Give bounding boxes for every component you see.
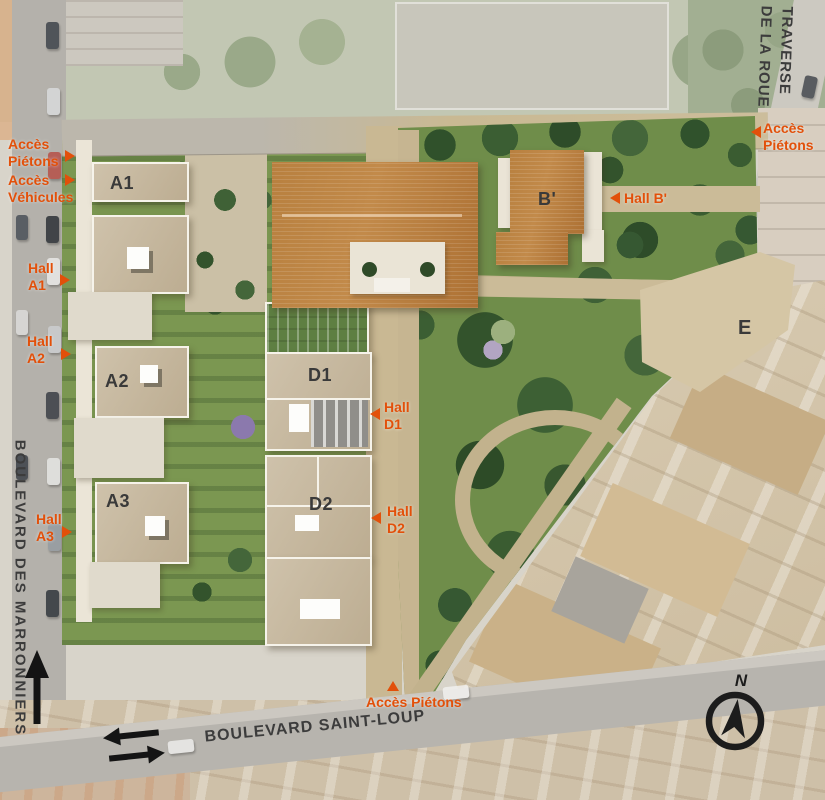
- arrow-right-icon: [60, 274, 70, 286]
- parked-car: [46, 590, 59, 617]
- central-courtyard: [185, 140, 267, 312]
- label-line: Hall: [27, 333, 53, 350]
- building-a1-north-wing: [92, 162, 189, 202]
- building-b-south-wing-roof: [496, 232, 568, 265]
- arrow-left-icon: [371, 512, 381, 524]
- label-line: Piétons: [763, 137, 814, 154]
- label-line: Hall: [36, 511, 62, 528]
- label-line: A2: [27, 350, 53, 367]
- building-d1-gray-roof: [311, 400, 368, 447]
- arrow-left-icon: [610, 192, 620, 204]
- hall-a1-label: Hall A1: [28, 260, 54, 294]
- rooflight: [145, 516, 165, 536]
- residence-site-plan: N BOULEVARD DES MARRONNIERS BOULEVARD SA…: [0, 0, 825, 800]
- building-label-e: E: [738, 317, 752, 340]
- rooflight: [140, 365, 158, 383]
- existing-building-entrance: [350, 242, 445, 294]
- access-pedestrian-ne-label: Accès Piétons: [763, 120, 814, 154]
- building-b-east-band: [582, 152, 602, 232]
- building-label-a3: A3: [106, 491, 130, 512]
- arrow-up-icon: [387, 681, 399, 691]
- parked-car: [47, 458, 60, 485]
- parked-car: [46, 392, 59, 419]
- road-label-boulevard-des-marronniers: BOULEVARD DES MARRONNIERS: [12, 440, 29, 736]
- label-line: A3: [36, 528, 62, 545]
- entrance-canopy: [374, 278, 410, 292]
- building-label-b: B': [538, 189, 556, 210]
- building-label-a2: A2: [105, 371, 129, 392]
- bush: [362, 262, 377, 277]
- label-line: Accès: [763, 120, 814, 137]
- hall-b-label: Hall B': [624, 190, 667, 207]
- building-d-green-roof: [265, 302, 369, 356]
- label-line: Véhicules: [8, 189, 73, 206]
- building-a-link-block: [74, 418, 164, 478]
- rooflight: [295, 515, 319, 531]
- label-line: Accès: [8, 136, 59, 153]
- parked-car: [47, 88, 60, 115]
- building-a-link-block: [90, 562, 160, 608]
- roof-ridge: [282, 214, 462, 217]
- hall-d2-label: Hall D2: [387, 503, 413, 537]
- access-vehicle-w-label: Accès Véhicules: [8, 172, 73, 206]
- arrow-left-icon: [370, 408, 380, 420]
- rooflight: [300, 599, 340, 619]
- label-line: Accès: [8, 172, 73, 189]
- arrow-left-icon: [751, 126, 761, 138]
- aerial-backdrop-nw-buildings: [58, 0, 183, 66]
- hall-a3-label: Hall A3: [36, 511, 62, 545]
- arrow-right-icon: [61, 348, 71, 360]
- label-line: Piétons: [8, 153, 59, 170]
- building-a1-main: [92, 215, 189, 294]
- compass-north-letter: N: [735, 671, 748, 690]
- two-way-traffic-arrows: [96, 718, 173, 773]
- label-line: Hall: [384, 399, 410, 416]
- road-label-line2: DE LA ROUE: [752, 5, 777, 108]
- road-label-line1: TRAVERSE: [773, 6, 798, 109]
- label-line: D1: [384, 416, 410, 433]
- arrow-right-icon: [62, 526, 72, 538]
- label-line: D2: [387, 520, 413, 537]
- road-label-traverse-de-la-roue: TRAVERSE DE LA ROUE: [752, 5, 798, 108]
- label-line: Hall: [28, 260, 54, 277]
- hall-d1-label: Hall D1: [384, 399, 410, 433]
- building-b-se-band: [582, 230, 604, 262]
- parked-car: [46, 216, 59, 243]
- rooflight: [289, 404, 309, 432]
- building-label-d1: D1: [308, 365, 332, 386]
- arrow-right-icon: [65, 174, 75, 186]
- label-line: Hall: [387, 503, 413, 520]
- arrow-right-icon: [65, 150, 75, 162]
- vehicle-on-road: [167, 739, 194, 755]
- compass-north-icon: N: [700, 666, 772, 758]
- rooflight: [127, 247, 149, 269]
- access-pedestrian-s-label: Accès Piétons: [366, 694, 462, 711]
- access-pedestrian-nw-label: Accès Piétons: [8, 136, 59, 170]
- building-label-a1: A1: [110, 173, 134, 194]
- building-a-link-block: [68, 292, 152, 340]
- sports-court: [395, 2, 669, 110]
- parked-car: [16, 215, 28, 240]
- building-d-south-wing: [265, 557, 372, 646]
- parked-car: [16, 310, 28, 335]
- building-label-d2: D2: [309, 494, 333, 515]
- label-line: A1: [28, 277, 54, 294]
- parked-car: [46, 22, 59, 49]
- west-sidewalk: [76, 140, 92, 622]
- hall-a2-label: Hall A2: [27, 333, 53, 367]
- bush: [420, 262, 435, 277]
